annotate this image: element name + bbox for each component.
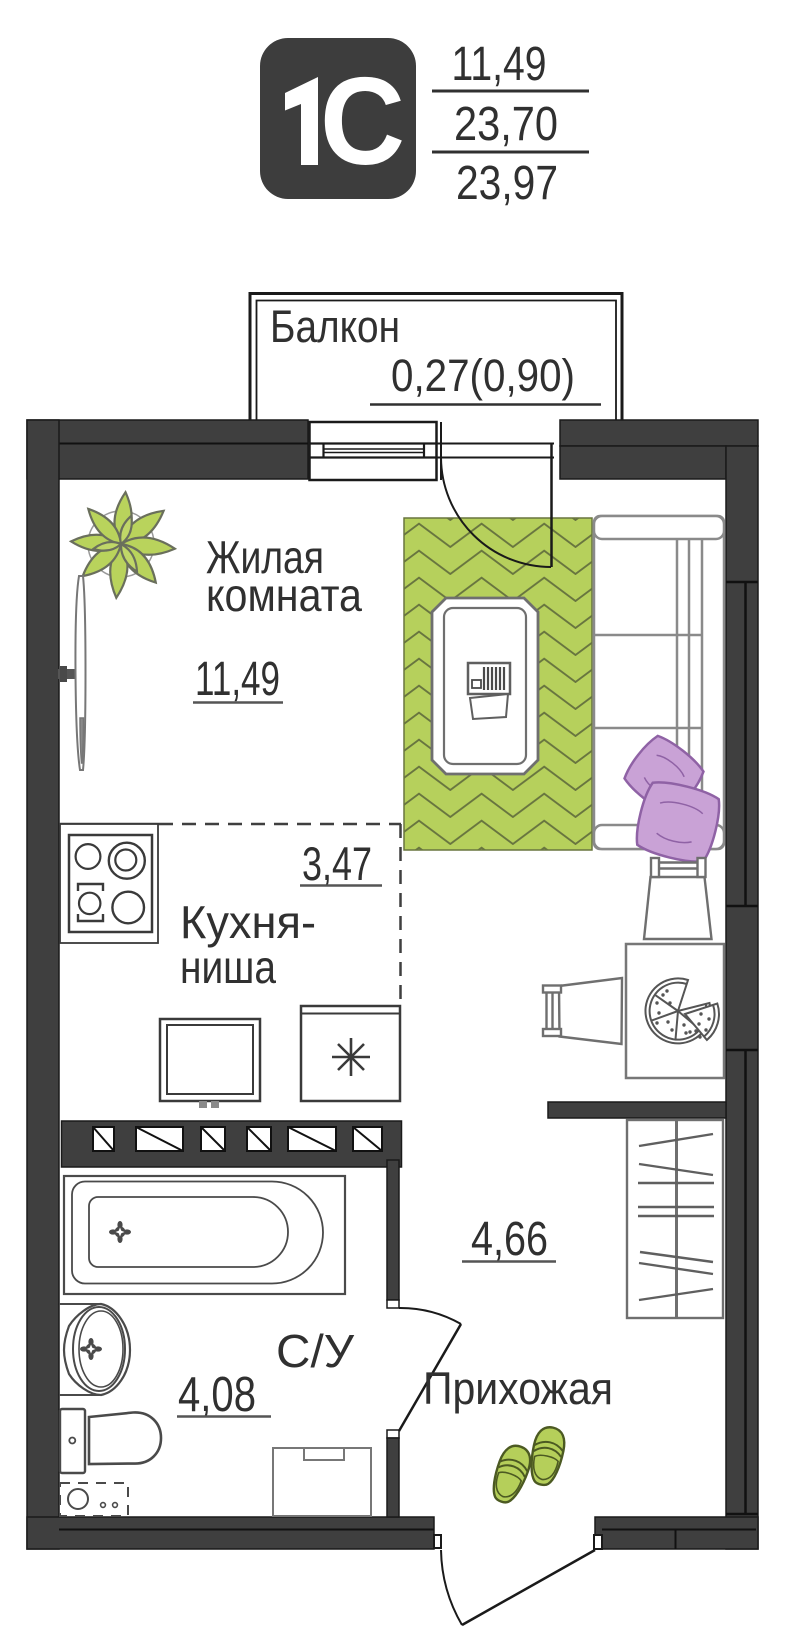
svg-text:11,49: 11,49 <box>195 653 280 706</box>
svg-text:23,97: 23,97 <box>456 157 558 210</box>
svg-text:4,66: 4,66 <box>471 1213 548 1266</box>
svg-text:23,70: 23,70 <box>454 98 558 151</box>
svg-text:11,49: 11,49 <box>452 38 547 91</box>
svg-text:Балкон: Балкон <box>270 301 400 352</box>
svg-text:комната: комната <box>206 569 362 621</box>
svg-text:ниша: ниша <box>180 941 276 993</box>
svg-text:3,47: 3,47 <box>302 837 372 890</box>
svg-text:0,27(0,90): 0,27(0,90) <box>391 350 575 401</box>
svg-text:С: С <box>320 53 405 191</box>
svg-text:Прихожая: Прихожая <box>423 1363 613 1414</box>
svg-text:4,08: 4,08 <box>178 1368 256 1422</box>
svg-text:С/У: С/У <box>276 1325 355 1377</box>
